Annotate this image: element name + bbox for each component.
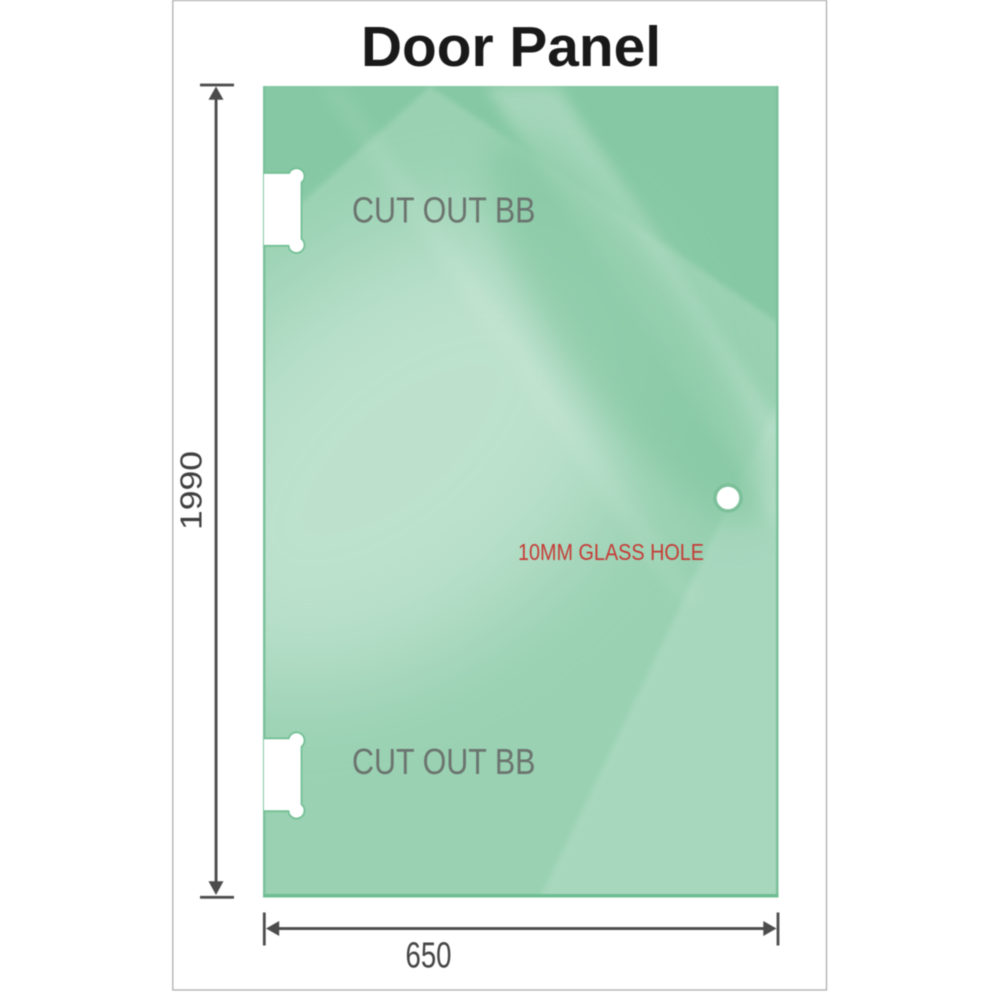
svg-text:CUT OUT BB: CUT OUT BB — [352, 189, 536, 230]
svg-text:1990: 1990 — [174, 451, 209, 530]
svg-text:CUT OUT BB: CUT OUT BB — [352, 741, 536, 782]
svg-text:650: 650 — [406, 935, 452, 976]
svg-text:Door Panel: Door Panel — [361, 15, 661, 78]
svg-text:10MM GLASS HOLE: 10MM GLASS HOLE — [518, 539, 704, 565]
